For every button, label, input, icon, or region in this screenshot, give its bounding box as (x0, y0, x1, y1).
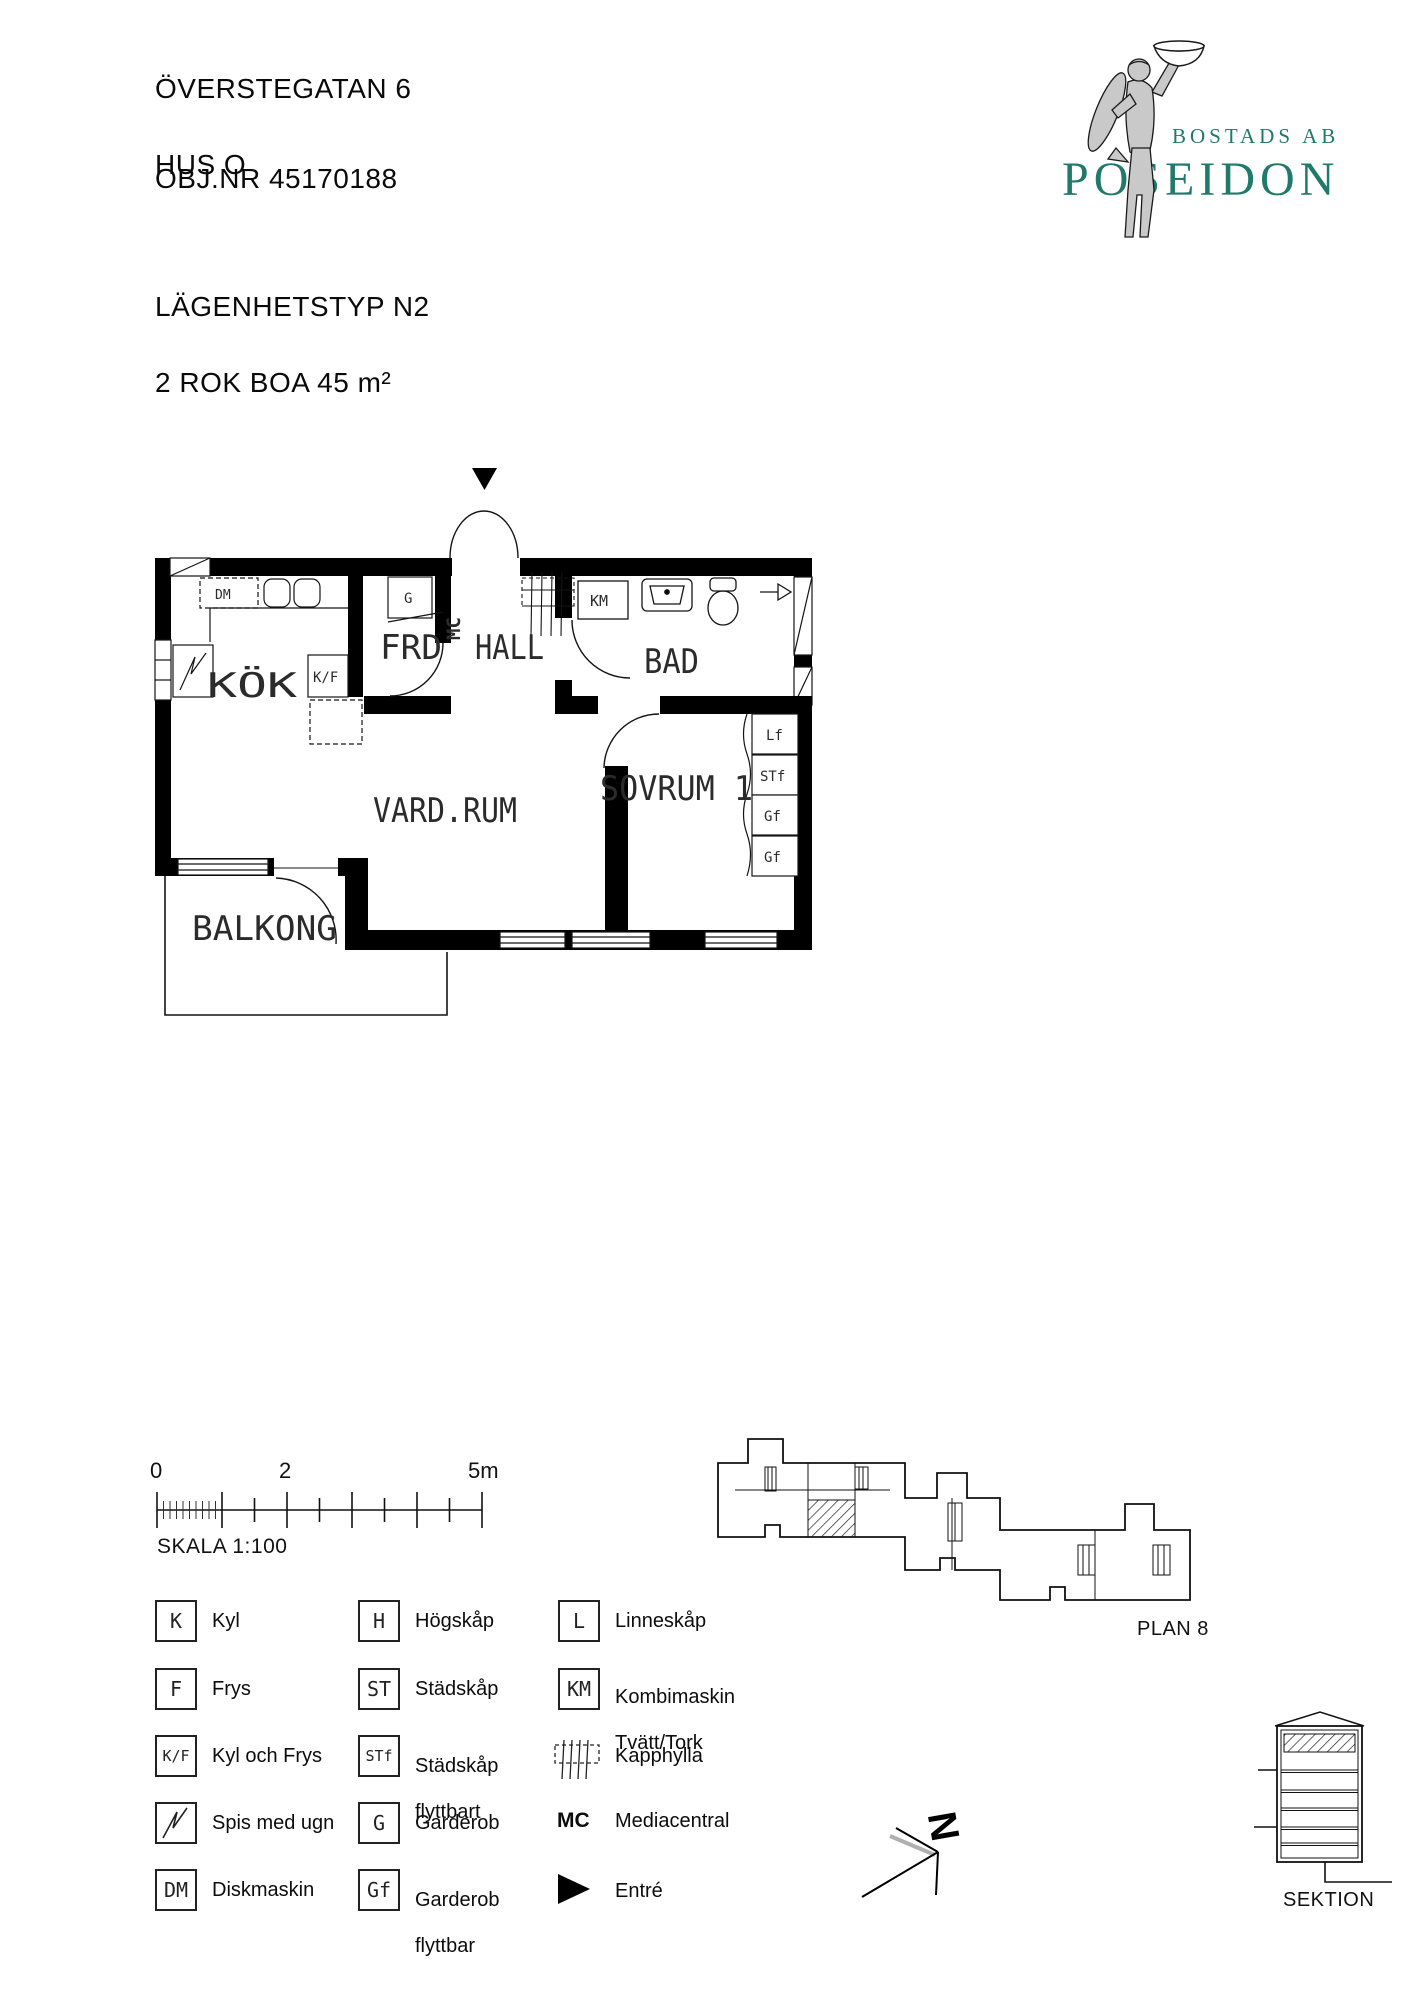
floor-plan-drawing: KÖK FRD HALL BAD VARD.RUM SOVRUM 1 BALKO… (148, 450, 848, 1025)
floorplan-document: ÖVERSTEGATAN 6 HUS O OBJ.NR 45170188 LÄG… (0, 0, 1413, 2000)
legend-symbol-mediacentral: MC (557, 1809, 590, 1833)
legend-label-kyl-frys: Kyl och Frys (212, 1745, 322, 1768)
legend-symbol-spis (155, 1802, 197, 1844)
north-arrow-icon (850, 1795, 990, 1910)
room-label-storage: FRD (380, 628, 442, 668)
legend-symbol-stadskap: ST (358, 1668, 400, 1710)
scale-tick-2: 2 (279, 1458, 291, 1484)
apartment-type: LÄGENHETSTYP N2 (155, 288, 430, 326)
legend-label-entre: Entré (615, 1880, 663, 1903)
room-labels: KÖK FRD HALL BAD VARD.RUM SOVRUM 1 BALKO… (192, 628, 753, 949)
section-label: SEKTION (1283, 1889, 1374, 1912)
window-symbols (155, 558, 812, 948)
bath-sink (642, 579, 692, 611)
legend-symbol-hogskap: H (358, 1600, 400, 1642)
frd-closet (388, 577, 443, 622)
legend-label-garderob: Garderob (415, 1812, 500, 1835)
site-plan-details (735, 1463, 1170, 1600)
label-stf: STf (760, 769, 785, 785)
room-label-bedroom: SOVRUM 1 (600, 769, 753, 809)
legend-symbol-garderob: G (358, 1802, 400, 1844)
label-kf: K/F (313, 670, 338, 686)
building-outline (718, 1439, 1190, 1600)
scale-bar (140, 1450, 510, 1535)
legend-symbol-frys: F (155, 1668, 197, 1710)
label-g: G (404, 591, 412, 607)
apartment-type-block: LÄGENHETSTYP N2 2 ROK BOA 45 m² (155, 250, 430, 440)
legend-symbol-kyl-frys: K/F (155, 1735, 197, 1777)
scale-text: SKALA 1:100 (157, 1535, 287, 1559)
stove-zigzag-icon (157, 1804, 195, 1842)
legend-label-diskmaskin: Diskmaskin (212, 1879, 314, 1902)
legend-label-stadskap: Städskåp (415, 1678, 498, 1701)
kitchen-fixtures (173, 578, 362, 744)
legend-symbol-stadskap-flyttbart: STf (358, 1735, 400, 1777)
room-label-living: VARD.RUM (373, 791, 517, 831)
entre-triangle-icon (558, 1874, 590, 1904)
section-highlighted-floor (1284, 1734, 1355, 1752)
section-drawing (1240, 1700, 1413, 1900)
scale-tick-0: 0 (150, 1458, 162, 1484)
stove-symbol (180, 653, 206, 690)
kapphylla-legend-icon (552, 1735, 604, 1783)
entry-arrow-icon (472, 468, 497, 490)
legend-symbol-garderob-flyttbar: Gf (358, 1869, 400, 1911)
scale-tick-5m: 5m (468, 1458, 499, 1484)
label-km: KM (590, 592, 608, 610)
label-mc: MC (443, 617, 465, 640)
legend-symbol-diskmaskin: DM (155, 1869, 197, 1911)
outer-walls (155, 558, 812, 950)
toilet-bowl (708, 591, 738, 625)
legend-symbol-kyl: K (155, 1600, 197, 1642)
legend-label-garderob-flyttbar: Garderob flyttbar (415, 1866, 500, 1981)
highlighted-apartment (808, 1500, 855, 1537)
label-lf: Lf (766, 728, 783, 744)
label-gf-a: Gf (764, 809, 781, 825)
legend-symbol-kombimaskin: KM (558, 1668, 600, 1710)
legend-label-kyl: Kyl (212, 1610, 240, 1633)
label-dm: DM (215, 588, 231, 603)
legend-label-spis: Spis med ugn (212, 1812, 334, 1835)
room-label-kitchen: KÖK (207, 665, 298, 706)
legend-label-kapphylla: Kapphylla (615, 1745, 703, 1768)
toilet-tank (710, 578, 736, 591)
object-number: OBJ.NR 45170188 (155, 160, 398, 198)
room-label-balcony: BALKONG (192, 909, 337, 949)
room-label-hall: HALL (475, 628, 544, 668)
vent-arrow-icon (778, 584, 791, 600)
room-label-bath: BAD (644, 642, 699, 682)
legend-symbol-linneskap: L (558, 1600, 600, 1642)
site-plan-label: PLAN 8 (1137, 1618, 1209, 1641)
address-line-1: ÖVERSTEGATAN 6 (155, 70, 411, 108)
apartment-size: 2 ROK BOA 45 m² (155, 364, 430, 402)
bathroom-fixtures (578, 578, 791, 625)
legend-label-mediacentral: Mediacentral (615, 1810, 730, 1833)
poseidon-statue-icon (1082, 30, 1217, 245)
site-plan-drawing (705, 1425, 1205, 1660)
entry-door-arc (450, 511, 518, 558)
label-gf-b: Gf (764, 850, 781, 866)
legend-label-linneskap: Linneskåp (615, 1610, 706, 1633)
legend-label-hogskap: Högskåp (415, 1610, 494, 1633)
legend-label-frys: Frys (212, 1678, 251, 1701)
